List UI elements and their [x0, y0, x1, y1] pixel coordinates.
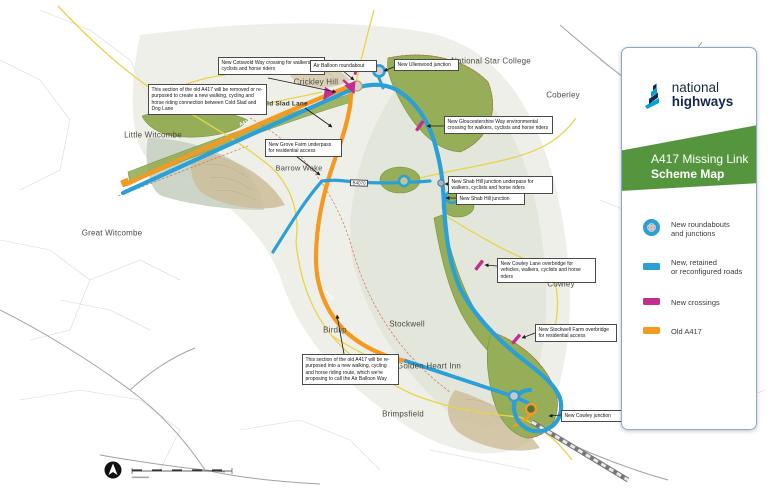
place-label-crickley-hill: Crickley Hill	[294, 78, 338, 87]
scheme-title-banner: A417 Missing Link Scheme Map	[621, 125, 757, 191]
scheme-title: A417 Missing Link	[651, 152, 748, 166]
north-arrow	[105, 462, 122, 479]
old-a417-end-cap	[120, 178, 130, 188]
place-label-brimpsfield: Brimpsfield	[382, 410, 424, 419]
a417-scheme-map: Little Witcombe Great Witcombe Crickley …	[0, 0, 768, 497]
callout-air-balloon-way: This section of the old A417 will be re-…	[302, 354, 399, 385]
place-label-golden-heart-inn: Golden Heart Inn	[397, 362, 461, 371]
callout-grove-farm-underpass: New Grove Farm underpass for residential…	[265, 139, 342, 157]
legend-panel: national highways A417 Missing Link Sche…	[621, 47, 757, 430]
callout-gloucestershire-way-crossing: New Gloucestershire Way environmental cr…	[444, 116, 553, 134]
legend-label: New roundabouts	[671, 220, 730, 229]
legend-label: Old A417	[671, 327, 702, 336]
old-road-swatch	[643, 327, 660, 334]
cowley-junction-roundabout-south	[526, 404, 536, 414]
cowley-junction-roundabout-north	[509, 391, 519, 401]
callout-shab-hill-junction: New Shab Hill junction	[456, 193, 525, 205]
brand-line-1: national	[672, 81, 734, 95]
scheme-subtitle: Scheme Map	[651, 167, 724, 181]
brand-line-2: highways	[672, 95, 734, 109]
callout-stockwell-farm-overbridge: New Stockwell Farm overbridge for reside…	[535, 324, 617, 342]
place-label-coberley: Coberley	[546, 91, 580, 100]
shab-hill-underpass-marker	[438, 180, 444, 186]
legend-label: New crossings	[671, 298, 720, 307]
callout-air-balloon-roundabout: Air Balloon roundabout	[310, 60, 377, 72]
place-label-stockwell: Stockwell	[389, 320, 425, 329]
shab-hill-west-roundabout	[399, 176, 409, 186]
roundabout-swatch	[643, 219, 660, 236]
place-label-little-witcombe: Little Witcombe	[124, 131, 182, 140]
national-highways-wordmark: national highways	[672, 81, 734, 109]
national-highways-logo: national highways	[622, 80, 756, 110]
legend-label: or reconfigured roads	[671, 267, 742, 276]
crossing-swatch	[643, 298, 660, 305]
legend-label: New, retained	[671, 258, 717, 267]
callout-shab-hill-underpass: New Shab Hill junction underpass for wal…	[448, 176, 553, 194]
callout-old-a417-removed: This section of the old A417 will be rem…	[148, 84, 267, 115]
callout-cotswold-way-crossing: New Cotswold Way crossing for walkers, c…	[218, 57, 325, 75]
new-road-swatch	[643, 263, 660, 270]
place-label-national-star-college: National Star College	[451, 57, 531, 66]
place-label-barrow-wake: Barrow Wake	[276, 164, 323, 173]
legend-label: and junctions	[671, 229, 715, 238]
place-label-birdlip: Birdlip	[323, 326, 347, 335]
place-label-great-witcombe: Great Witcombe	[82, 229, 143, 238]
callout-cowley-lane-overbridge: New Cowley Lane overbridge for vehicles,…	[497, 258, 596, 283]
national-highways-swoosh-icon	[645, 80, 667, 110]
road-label-b4070: B4070	[350, 179, 368, 187]
callout-ullenwood-junction: New Ullenwood junction	[394, 59, 459, 71]
